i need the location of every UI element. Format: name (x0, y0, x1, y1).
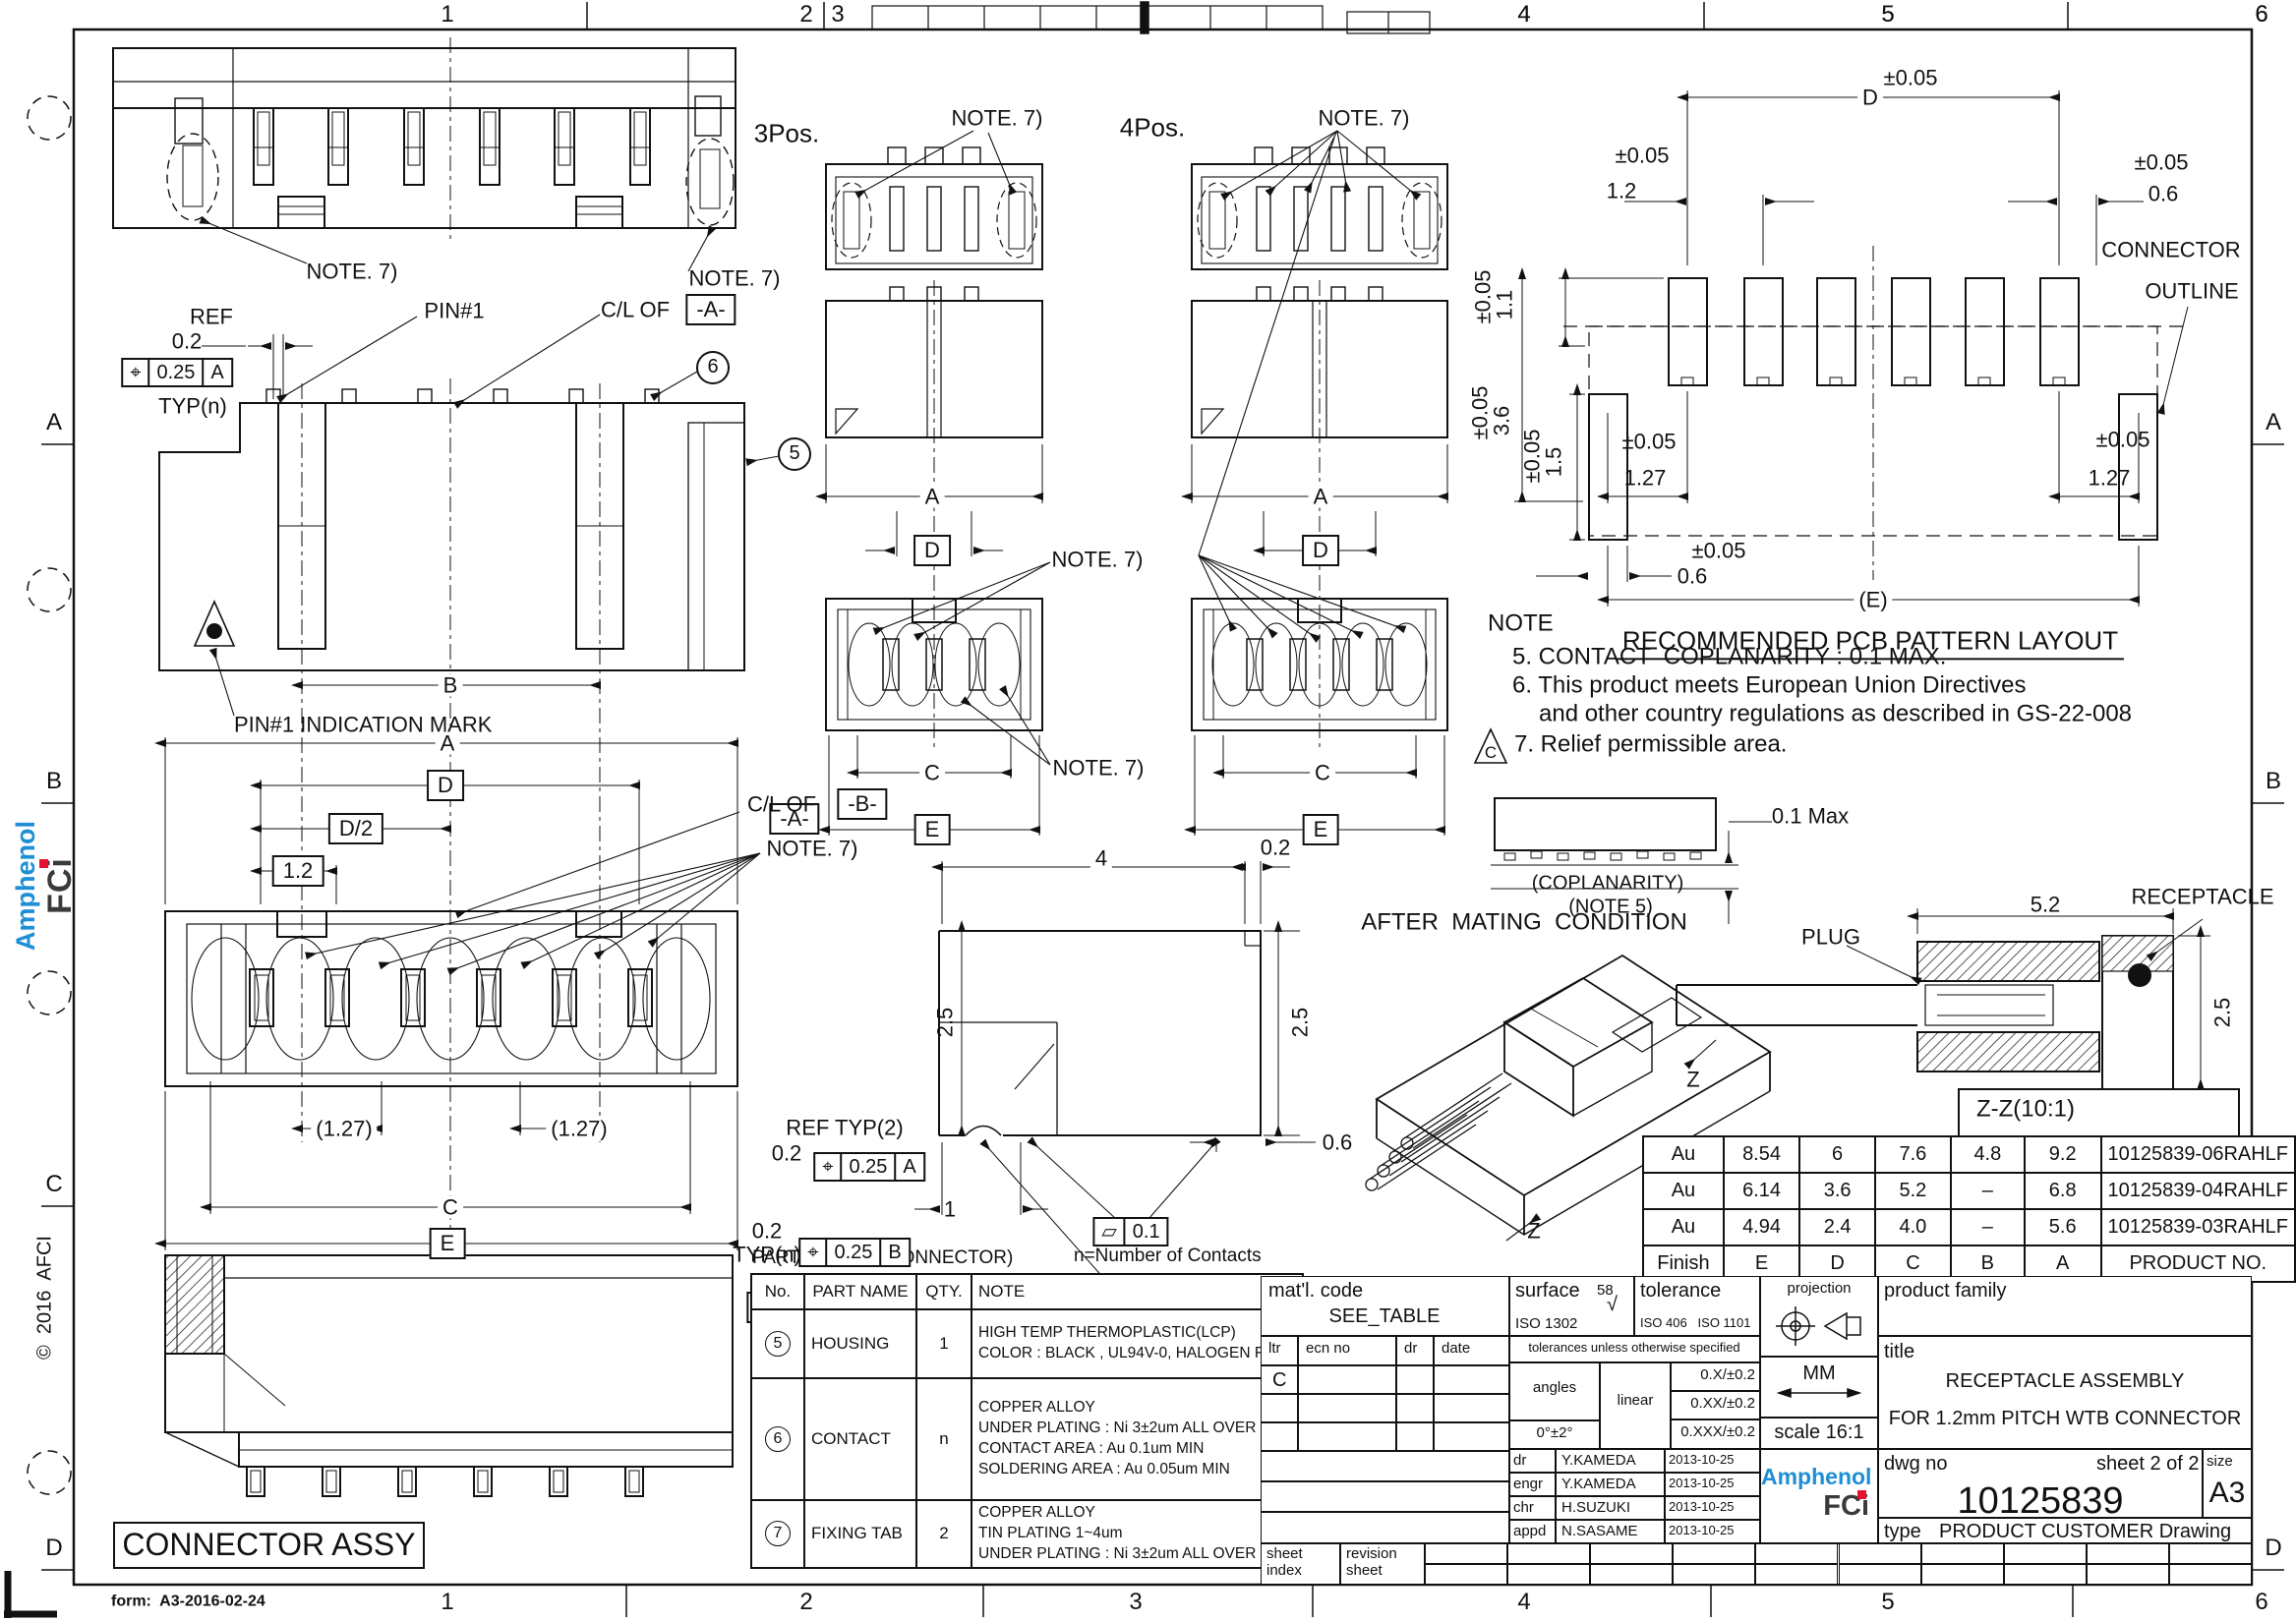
part-number-balloon: 6 (765, 1426, 791, 1452)
title-block-text: ltr (1268, 1340, 1281, 1357)
label-pm005: ±0.05 (1468, 386, 1491, 440)
parts-table-cell: 5 (751, 1309, 804, 1378)
title-block-cell: AmphenolFCi (1760, 1449, 1878, 1543)
finish-table-cell: Au (1643, 1209, 1724, 1245)
dim-e-box: E (914, 814, 951, 845)
title-block-text: type (1884, 1521, 1921, 1543)
label-dim25: 2.5 (1288, 1008, 1311, 1038)
fci-red-dot-icon (39, 859, 48, 868)
title-block-text: engr (1513, 1476, 1543, 1492)
title-block-text: 2013-10-25 (1669, 1523, 1735, 1537)
label-dimA: A (1309, 485, 1333, 507)
title-block-cell (1261, 1422, 1298, 1451)
parts-table-cell: 1 (916, 1309, 971, 1378)
label-note_h: NOTE (1488, 610, 1554, 635)
position-icon: ⌖ (815, 1154, 842, 1180)
title-block-text: Y.KAMEDA (1561, 1452, 1636, 1469)
title-block-text: tolerances unless otherwise specified (1528, 1340, 1739, 1355)
parallelism-icon: ▱ (1094, 1219, 1125, 1245)
label-note6a: 6. This product meets European Union Dir… (1512, 672, 2026, 697)
title-block-text: MM (1802, 1362, 1835, 1385)
label-pm005: ±0.05 (2096, 428, 2150, 450)
label-dim36: 3.6 (1490, 406, 1512, 436)
title-block-cell (1755, 1543, 1838, 1564)
finish-table-cell: 10125839-04RAHLF (2101, 1173, 2295, 1209)
label-note7: NOTE. 7) (689, 266, 781, 289)
title-block-text: appd (1513, 1523, 1546, 1539)
finish-table-row: Au6.143.65.2–6.810125839-04RAHLF (1643, 1173, 2295, 1209)
finish-table-cell: 3.6 (1799, 1173, 1875, 1209)
label-dim06: 0.6 (1323, 1130, 1353, 1153)
label-pm005: ±0.05 (1884, 66, 1938, 88)
parts-table-cell: 7 (751, 1500, 804, 1568)
title-block-text: angles (1533, 1379, 1576, 1396)
label-receptacle: RECEPTACLE (2131, 885, 2273, 907)
finish-table-cell: Au (1643, 1136, 1724, 1173)
parts-table-cell: HIGH TEMP THERMOPLASTIC(LCP) COLOR : BLA… (971, 1309, 1303, 1378)
title-block-text: C (1272, 1369, 1286, 1392)
parts-table-cell: CONTACT (804, 1378, 916, 1500)
dim-d-box: D (913, 535, 951, 566)
parts-table-header: No. (751, 1274, 804, 1309)
label-clof: C/L OF (601, 298, 670, 320)
title-block-cell (1673, 1543, 1755, 1564)
zone-label: 3 (1129, 1589, 1142, 1616)
dim-1-2-box: 1.2 (272, 855, 324, 887)
title-block-cell (1298, 1422, 1396, 1451)
title-block-text: dwg no (1884, 1453, 1948, 1476)
title-block-cell (2087, 1543, 2169, 1564)
title-block-cell (1298, 1365, 1396, 1394)
title-block-text: product family (1884, 1280, 2007, 1303)
zone-label: 6 (2255, 1, 2267, 29)
connector-assy-view (165, 1255, 733, 1496)
title-block-cell (1507, 1543, 1590, 1564)
label-mating: AFTER MATING CONDITION (1361, 909, 1687, 934)
title-block-text: title (1884, 1341, 1914, 1363)
title-block-text: surface (1515, 1280, 1580, 1303)
title-block-cell (2004, 1543, 2087, 1564)
finish-table-cell: 2.4 (1799, 1209, 1875, 1245)
title-block-text: Y.KAMEDA (1561, 1476, 1636, 1492)
parts-table-cell: 2 (916, 1500, 971, 1568)
finish-table-cell: 10125839-03RAHLF (2101, 1209, 2295, 1245)
title-block-cell (1590, 1543, 1673, 1564)
title-block-text: projection (1787, 1280, 1851, 1297)
title-block-text: √ (1607, 1294, 1618, 1316)
finish-table-cell: – (1951, 1173, 2025, 1209)
title-block-text: sheet 2 of 2 (2096, 1453, 2200, 1476)
parts-table-row: 5HOUSING1HIGH TEMP THERMOPLASTIC(LCP) CO… (751, 1309, 1303, 1378)
label-dim127p: (1.27) (311, 1117, 377, 1139)
title-block-cell (1396, 1365, 1434, 1394)
label-dimD: D (1857, 86, 1883, 108)
label-dim11: 1.1 (1493, 290, 1515, 320)
title-block-text: 2013-10-25 (1669, 1452, 1735, 1467)
finish-table-cell: 6.14 (1724, 1173, 1799, 1209)
finish-table-cell: 4.0 (1875, 1209, 1951, 1245)
balloon-5: 5 (778, 437, 811, 471)
title-block-text: sheet (1266, 1545, 1303, 1562)
label-dim127: 1.27 (1624, 466, 1667, 489)
title-block-cell (1261, 1512, 1509, 1543)
label-dimA: A (436, 731, 460, 754)
title-block-text: ISO 1302 (1515, 1315, 1577, 1332)
finish-table-cell: – (1951, 1209, 2025, 1245)
label-dimB: B (439, 673, 463, 696)
fci-logo-text: FCi (41, 857, 79, 914)
label-dim52: 5.2 (2026, 893, 2066, 915)
datum-a-box: -A- (685, 294, 736, 325)
label-dim06: 0.6 (1673, 564, 1713, 587)
title-block-text: N.SASAME (1561, 1523, 1638, 1539)
label-note7: NOTE. 7) (952, 106, 1043, 129)
drawing-sheet: { "sheet": { "form": "form: A3-2016-02-2… (0, 0, 2296, 1622)
zone-label: C (45, 1171, 62, 1198)
title-block-cell (1434, 1422, 1509, 1451)
title-block-text: 2013-10-25 (1669, 1476, 1735, 1490)
finish-table-cell: 8.54 (1724, 1136, 1799, 1173)
amphenol-logo-text: Amphenol (11, 821, 40, 951)
label-note5: 5. CONTACT COPLANARITY : 0.1 MAX. (1512, 644, 1946, 668)
copyright-text: © 2016 AFCI (35, 1236, 56, 1360)
label-zz: Z-Z(10:1) (1976, 1096, 2075, 1121)
label-dim127: 1.27 (2089, 466, 2131, 489)
label-plug: PLUG (1801, 925, 1860, 948)
zone-label: B (46, 768, 62, 795)
title-block-text: scale 16:1 (1774, 1421, 1863, 1444)
finish-table-cell: Au (1643, 1173, 1724, 1209)
position-tolerance-frame: ⌖0.25A (121, 358, 233, 387)
title-block-text: chr (1513, 1499, 1534, 1516)
dim-d-box: D (1302, 535, 1339, 566)
label-pm005: ±0.05 (2135, 150, 2189, 173)
zone-label: 4 (1517, 1, 1530, 29)
label-dim25: 2.5 (933, 1008, 956, 1038)
label-reftyp2: REF TYP(2) (786, 1116, 903, 1138)
form-number: form: A3-2016-02-24 (111, 1594, 265, 1611)
zone-label: 3 (831, 1, 844, 29)
label-pm005: ±0.05 (1616, 144, 1670, 166)
label-pm005: ±0.05 (1692, 539, 1746, 561)
zone-label: 5 (1881, 1, 1894, 29)
label-note7: NOTE. 7) (1319, 106, 1410, 129)
parts-table-cell: COPPER ALLOY TIN PLATING 1~4um UNDER PLA… (971, 1500, 1303, 1568)
position-icon: ⌖ (800, 1240, 827, 1265)
title-block: mat'l. codeSEE_TABLEsurface58√ISO 1302to… (1261, 1276, 2252, 1585)
title-block-cell (1434, 1365, 1509, 1394)
label-note7t: 7. Relief permissible area. (1514, 731, 1787, 756)
zone-label: 1 (441, 1, 453, 29)
zone-label: D (45, 1535, 62, 1562)
label-note7: NOTE. 7) (307, 260, 398, 282)
label-pos3: 3Pos. (754, 120, 820, 146)
part-number-balloon: 5 (765, 1331, 791, 1357)
label-pm005: ±0.05 (1622, 430, 1677, 452)
title-block-cell (1261, 1394, 1298, 1422)
label-pos4: 4Pos. (1120, 114, 1186, 141)
position-icon: ⌖ (123, 360, 149, 385)
title-block-text: linear (1618, 1392, 1654, 1409)
title-block-text: 0°±2° (1537, 1424, 1573, 1441)
title-block-text: SEE_TABLE (1328, 1305, 1440, 1328)
title-block-text: 0.X/±0.2 (1700, 1366, 1755, 1383)
title-block-text: tolerance (1640, 1280, 1721, 1303)
label-dimC: C (919, 761, 945, 783)
label-z: Z (1686, 1068, 1699, 1090)
view-bottom-large (165, 737, 760, 1250)
title-block-cell (1921, 1564, 2004, 1585)
parts-table-header: PART NAME (804, 1274, 916, 1309)
title-block-text: FOR 1.2mm PITCH WTB CONNECTOR (1889, 1408, 2242, 1430)
zone-label: B (2266, 768, 2281, 795)
title-block-cell (2087, 1564, 2169, 1585)
zone-label: 4 (1517, 1589, 1530, 1616)
parts-table-header: QTY. (916, 1274, 971, 1309)
label-dim15: 1.5 (1542, 447, 1564, 478)
label-d02: 0.2 (772, 1141, 802, 1164)
connector-assy-label: CONNECTOR ASSY (113, 1522, 425, 1569)
finish-table-cell: 6 (1799, 1136, 1875, 1173)
parts-table-cell: n (916, 1378, 971, 1500)
dim-d-box: D (427, 770, 464, 801)
title-block-text: date (1442, 1340, 1470, 1357)
title-block-cell (1298, 1394, 1396, 1422)
label-ref: REF (190, 305, 233, 327)
label-note7: NOTE. 7) (1053, 756, 1145, 779)
part-number-balloon: 7 (765, 1521, 791, 1546)
title-block-text: 2013-10-25 (1669, 1499, 1735, 1514)
title-block-text: dr (1513, 1452, 1526, 1469)
zz-section (1677, 908, 2239, 1150)
label-d02: 0.2 (1261, 836, 1291, 858)
parts-table-cell: COPPER ALLOY UNDER PLATING : Ni 3±2um AL… (971, 1378, 1303, 1500)
parts-table-cell: HOUSING (804, 1309, 916, 1378)
label-d02: 0.2 (172, 329, 203, 352)
title-block-cell (1396, 1422, 1434, 1451)
label-dimC: C (438, 1195, 463, 1218)
datum-b-box: -B- (837, 788, 887, 820)
label-dim1: 1 (944, 1197, 956, 1220)
title-block-cell (1261, 1451, 1509, 1481)
finish-table-cell: 9.2 (2025, 1136, 2101, 1173)
zone-label: 5 (1881, 1589, 1894, 1616)
label-cop1: (COPLANARITY) (1532, 874, 1683, 895)
title-block-text: mat'l. code (1268, 1280, 1363, 1303)
finish-table-cell: 6.8 (2025, 1173, 2101, 1209)
title-block-cell (1921, 1543, 2004, 1564)
zone-label: 1 (441, 1589, 453, 1616)
parts-table: No.PART NAMEQTY.NOTE5HOUSING1HIGH TEMP T… (750, 1273, 1304, 1569)
parts-table-header: NOTE (971, 1274, 1303, 1309)
zone-label: A (46, 409, 62, 436)
finish-table-cell: 10125839-06RAHLF (2101, 1136, 2295, 1173)
title-block-text: H.SUZUKI (1561, 1499, 1630, 1516)
finish-table-row: Au8.5467.64.89.210125839-06RAHLF (1643, 1136, 2295, 1173)
finish-table-cell: 5.6 (2025, 1209, 2101, 1245)
label-cop01: 0.1 Max (1772, 804, 1849, 827)
title-block-text: 0.XXX/±0.2 (1680, 1423, 1755, 1440)
zone-label: 6 (2255, 1589, 2267, 1616)
label-typn: TYP(n) (733, 1243, 801, 1265)
dim-d2-box: D/2 (328, 813, 383, 844)
revision-c-triangle-label: C (1485, 743, 1497, 763)
title-block-cell (1673, 1564, 1755, 1585)
position-tolerance-frame: ⌖0.25B (798, 1238, 911, 1267)
title-block-cell (1839, 1564, 1921, 1585)
label-dimC: C (1310, 761, 1335, 783)
title-block-text: ISO 406 ISO 1101 (1640, 1315, 1751, 1330)
title-block-text: size (2207, 1453, 2233, 1470)
amphenol-fci-logo: Amphenol FCi (0, 843, 141, 932)
title-block-text: dr (1404, 1340, 1417, 1357)
title-block-cell (1755, 1564, 1838, 1585)
label-dim127p: (1.27) (546, 1117, 612, 1139)
dim-e-box: E (430, 1228, 466, 1259)
title-block-text: 0.XX/±0.2 (1690, 1395, 1755, 1412)
title-block-cell (2004, 1564, 2087, 1585)
finish-table-cell: 4.8 (1951, 1136, 2025, 1173)
label-dim4: 4 (1090, 846, 1112, 869)
label-z: Z (1527, 1219, 1540, 1242)
title-block-cell (1425, 1543, 1507, 1564)
title-block-text: index (1266, 1562, 1302, 1579)
finish-table-row: Au4.942.44.0–5.610125839-03RAHLF (1643, 1209, 2295, 1245)
finish-plating-table: Au8.5467.64.89.210125839-06RAHLFAu6.143.… (1642, 1135, 2296, 1283)
label-dimEp: (E) (1854, 588, 1892, 610)
title-block-cell (1261, 1481, 1509, 1512)
label-note7: NOTE. 7) (1052, 548, 1144, 570)
view-side-left (159, 315, 779, 1258)
title-block-cell (1507, 1564, 1590, 1585)
title-block-text: PRODUCT CUSTOMER Drawing (1939, 1521, 2231, 1543)
label-note7: NOTE. 7) (767, 837, 858, 859)
finish-table-cell: 4.94 (1724, 1209, 1799, 1245)
zone-label: A (2266, 409, 2281, 436)
flatness-tolerance-frame: ▱0.1 (1092, 1217, 1168, 1246)
title-block-text: RECEPTACLE ASSEMBLY (1946, 1370, 2185, 1393)
label-connector_line2: OUTLINE (2145, 279, 2238, 302)
mm-arrow-icon (1775, 1386, 1863, 1400)
parts-table-row: 7FIXING TAB2COPPER ALLOY TIN PLATING 1~4… (751, 1500, 1303, 1568)
label-d02: 0.2 (752, 1219, 783, 1242)
title-block-cell (2169, 1564, 2252, 1585)
title-block-cell (1590, 1564, 1673, 1585)
finish-table-cell: 7.6 (1875, 1136, 1951, 1173)
balloon-6: 6 (696, 351, 730, 384)
zone-label: 2 (799, 1589, 812, 1616)
label-dim12: 1.2 (1607, 179, 1637, 202)
title-block-cell (1396, 1394, 1434, 1422)
title-block-text: sheet (1346, 1562, 1383, 1579)
label-pm005: ±0.05 (1520, 430, 1543, 484)
view-front-top (113, 37, 736, 271)
title-block-text: revision (1346, 1545, 1397, 1562)
title-block-cell (1434, 1394, 1509, 1422)
label-connector_line1: CONNECTOR (2101, 238, 2240, 261)
dim-e-box: E (1303, 814, 1339, 845)
title-block-text: 10125839 (1957, 1480, 2123, 1523)
label-note6b: and other country regulations as describ… (1539, 701, 2132, 725)
parts-table-row: 6CONTACTnCOPPER ALLOY UNDER PLATING : Ni… (751, 1378, 1303, 1500)
zone-label: 2 (799, 1, 812, 29)
title-block-cell (2169, 1543, 2252, 1564)
label-pm005: ±0.05 (1471, 270, 1494, 324)
label-dimA: A (920, 485, 945, 507)
label-dim25: 2.5 (2210, 998, 2233, 1028)
parts-table-cell: 6 (751, 1378, 804, 1500)
position-tolerance-frame: ⌖0.25A (813, 1152, 925, 1182)
parts-table-cell: FIXING TAB (804, 1500, 916, 1568)
zone-label: D (2265, 1535, 2281, 1562)
title-block-text: A3 (2209, 1477, 2246, 1510)
title-block-cell (1425, 1564, 1507, 1585)
label-clof: C/L OF (747, 792, 816, 815)
title-block-text: ecn no (1306, 1340, 1350, 1357)
label-typn: TYP(n) (158, 394, 227, 417)
parts-table-subtitle: n=Number of Contacts (1074, 1246, 1262, 1266)
label-pin1: PIN#1 (424, 299, 484, 321)
projection-symbol-icon (1770, 1303, 1868, 1349)
title-block-cell (1839, 1543, 1921, 1564)
finish-table-cell: 5.2 (1875, 1173, 1951, 1209)
label-dim06: 0.6 (2149, 182, 2179, 204)
pcb-pattern-layout (1514, 90, 2188, 607)
